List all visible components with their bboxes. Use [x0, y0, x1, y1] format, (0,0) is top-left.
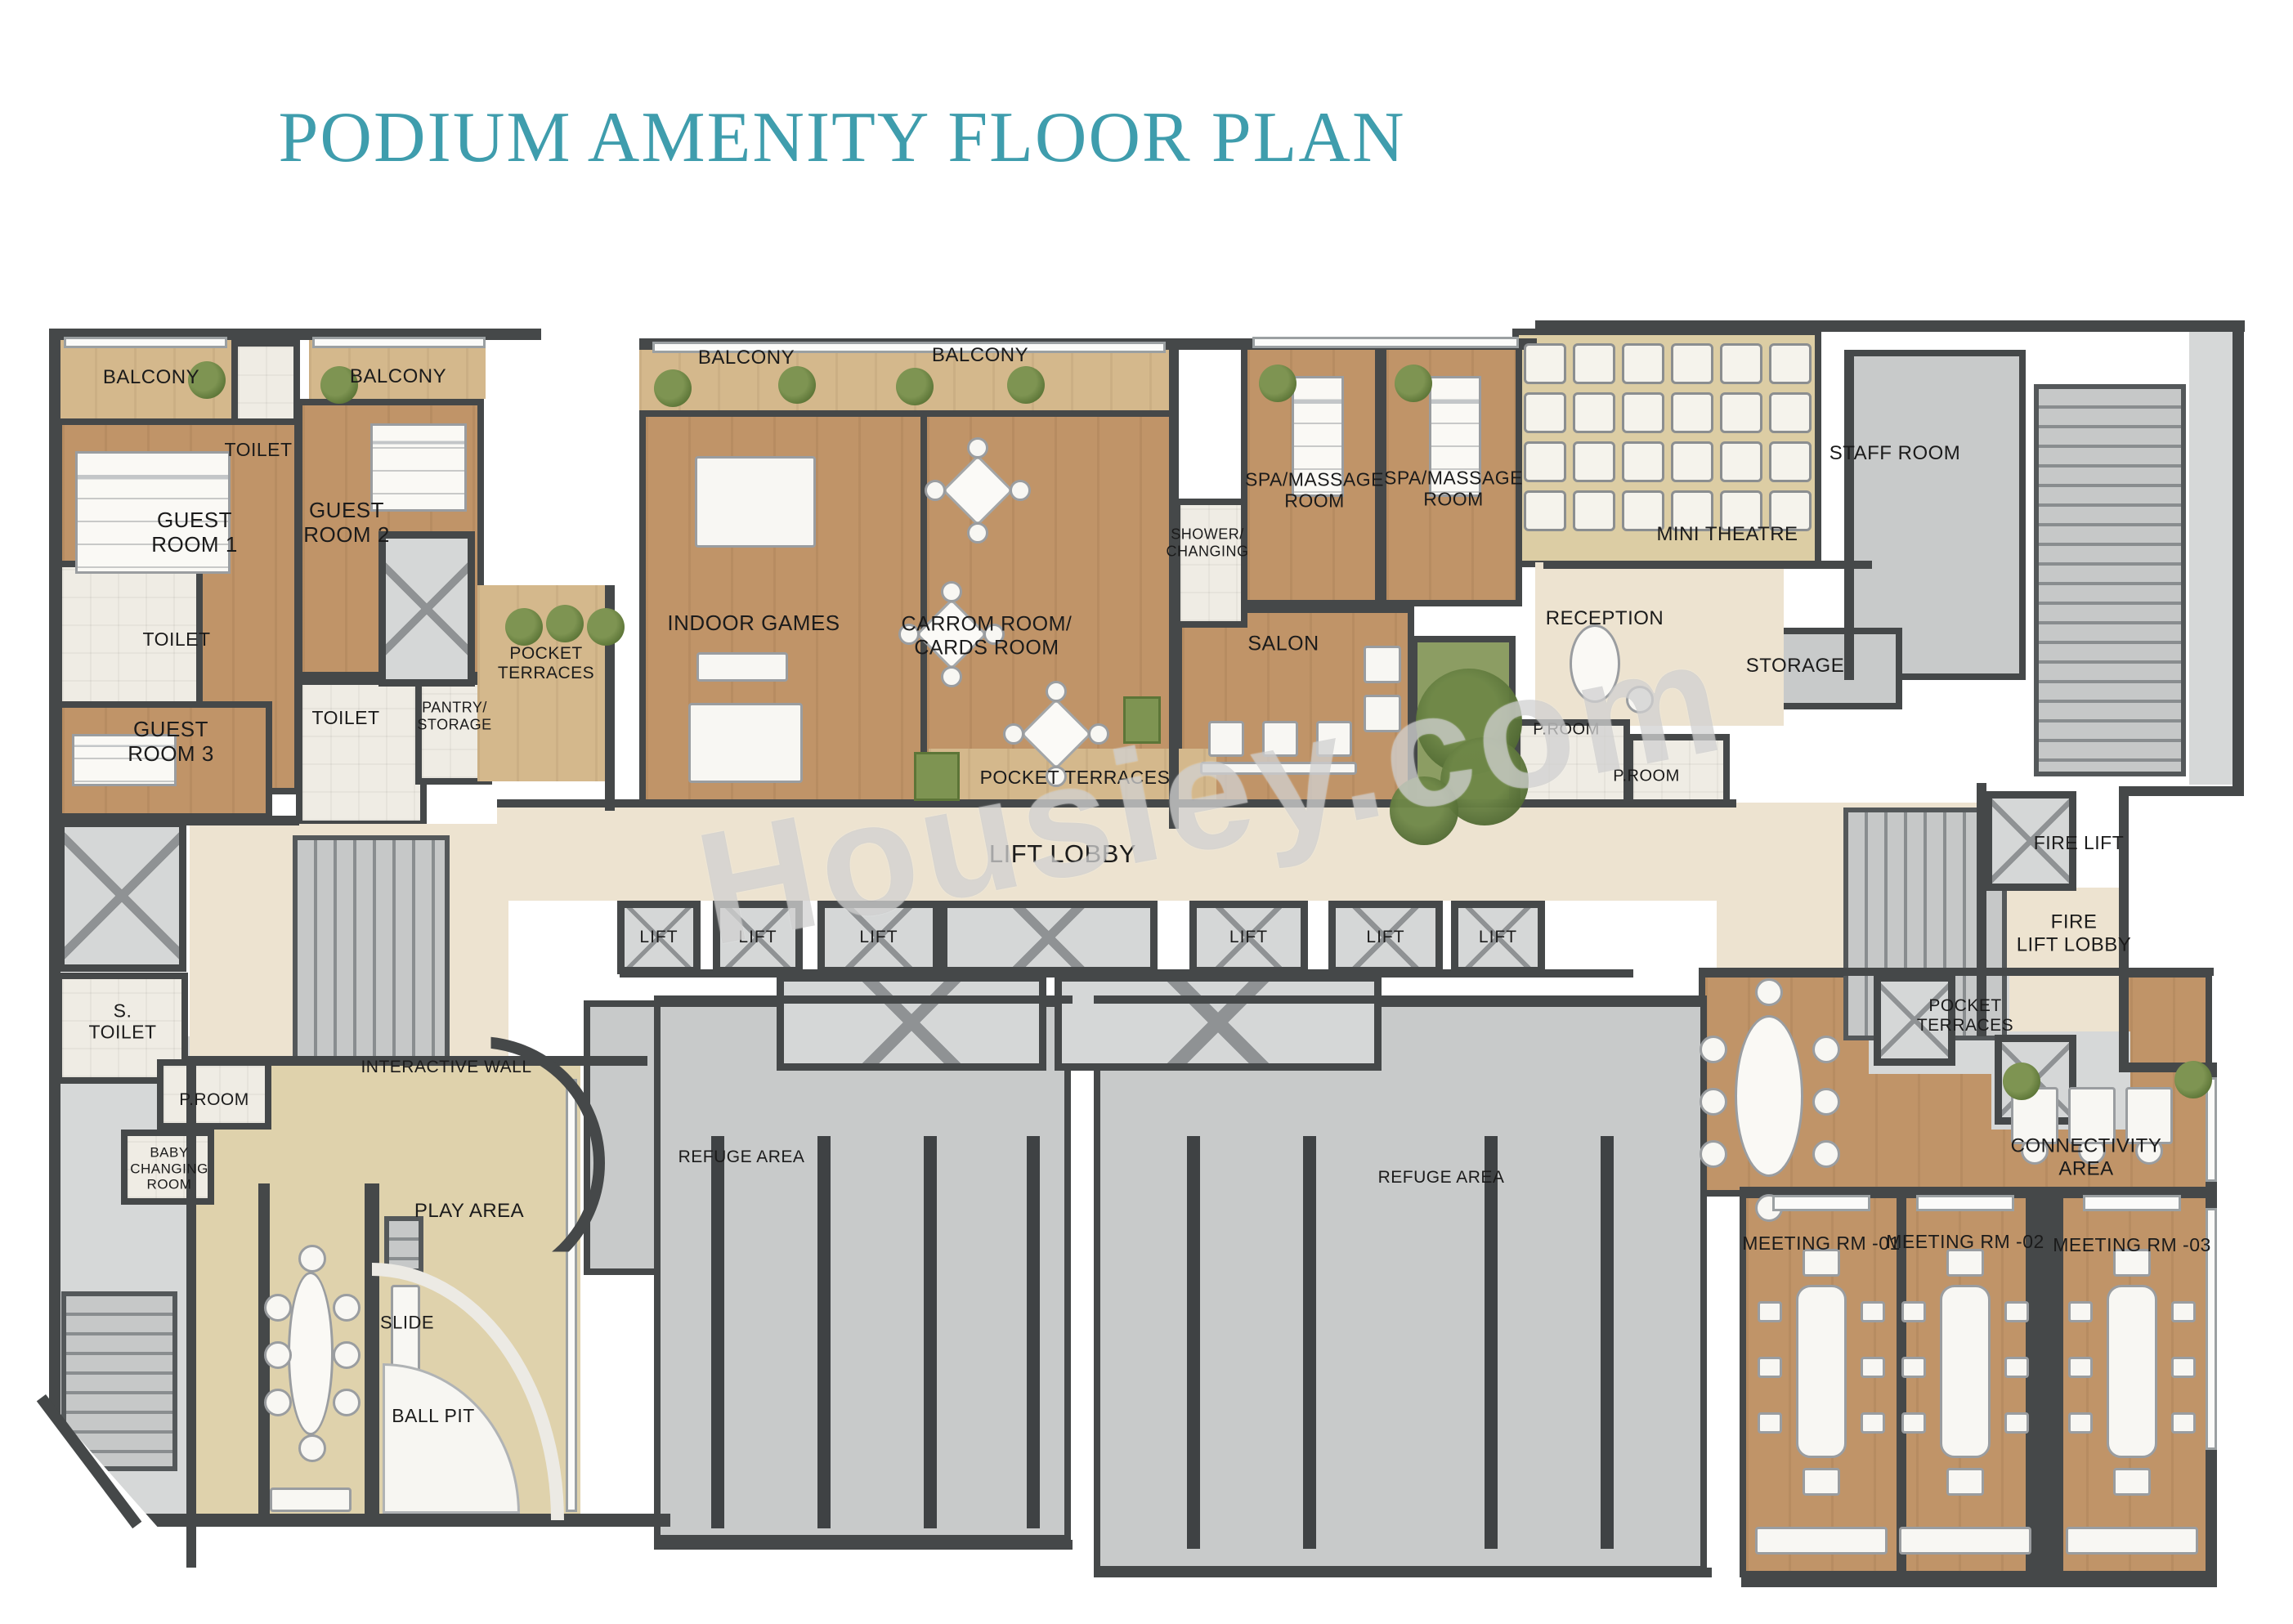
- label-pantry-storage: PANTRY/ STORAGE: [417, 699, 491, 732]
- lift-shaft: LIFT: [1451, 901, 1545, 974]
- meeting-table: [1940, 1285, 1991, 1458]
- chair: [298, 1434, 326, 1462]
- chair: [2004, 1412, 2029, 1434]
- chair: [1901, 1357, 1926, 1378]
- label-ball-pit: BALL PIT: [392, 1405, 475, 1426]
- window: [2206, 1077, 2217, 1182]
- theatre-seat: [1671, 343, 1713, 384]
- lift-shaft: LIFT: [1328, 901, 1443, 974]
- theatre-seat: [1622, 441, 1664, 482]
- column: [1601, 1136, 1614, 1549]
- chair: [333, 1389, 361, 1416]
- lift-label: LIFT: [1229, 928, 1268, 947]
- floor-plan-page: PODIUM AMENITY FLOOR PLAN LIFTLIFTLIFTLI…: [0, 0, 2293, 1624]
- label-meeting-rm-2: MEETING RM -02: [1886, 1231, 2044, 1252]
- staircase: [293, 835, 450, 1063]
- chair: [1812, 1036, 1840, 1063]
- label-balcony-3: BALCONY: [698, 347, 795, 369]
- chair: [264, 1389, 292, 1416]
- window-sill: [2083, 1195, 2181, 1211]
- plant: [1259, 365, 1297, 402]
- plant: [2174, 1061, 2212, 1098]
- column: [1027, 1136, 1040, 1528]
- theatre-seat: [1524, 392, 1566, 433]
- label-toilet-top: TOILET: [224, 439, 292, 460]
- chair: [2068, 1357, 2093, 1378]
- column: [924, 1136, 937, 1528]
- label-carrom-room: CARROM ROOM/ CARDS ROOM: [902, 612, 1073, 660]
- plant: [546, 605, 584, 642]
- plant: [2003, 1063, 2040, 1100]
- service-shaft: [57, 820, 186, 972]
- label-balcony-4: BALCONY: [932, 344, 1028, 367]
- chair: [2113, 1468, 2151, 1496]
- chair: [1812, 1140, 1840, 1168]
- label-guest-room-3: GUEST ROOM 3: [128, 718, 214, 767]
- label-staff-room: STAFF ROOM: [1829, 442, 1961, 465]
- wall: [654, 995, 1073, 1004]
- table: [270, 1488, 352, 1512]
- wall: [2119, 786, 2243, 796]
- chair: [298, 1245, 326, 1273]
- floor-shower-changing: [1174, 499, 1247, 628]
- wall: [49, 329, 60, 1440]
- chair: [1901, 1412, 1926, 1434]
- window-sill: [1916, 1195, 2014, 1211]
- lift-label: LIFT: [639, 928, 678, 947]
- label-guest-room-1: GUEST ROOM 1: [151, 508, 238, 557]
- label-meeting-rm-3: MEETING RM -03: [2053, 1234, 2211, 1255]
- wall: [2233, 320, 2244, 796]
- table: [695, 456, 816, 548]
- chair: [967, 522, 988, 544]
- label-balcony-1: BALCONY: [103, 366, 199, 389]
- chair: [1758, 1412, 1782, 1434]
- theatre-seat: [1622, 392, 1664, 433]
- label-play-area: PLAY AREA: [414, 1200, 524, 1223]
- column: [1303, 1136, 1316, 1549]
- label-storage: STORAGE: [1746, 655, 1844, 678]
- chair: [2068, 1301, 2093, 1322]
- plant: [1007, 366, 1045, 404]
- label-pocket-terraces-left: POCKET TERRACES: [498, 644, 594, 683]
- chair: [1861, 1357, 1885, 1378]
- plant: [778, 366, 816, 404]
- label-balcony-2: BALCONY: [350, 365, 446, 388]
- chair: [1803, 1468, 1840, 1496]
- table: [696, 652, 788, 682]
- theatre-seat: [1622, 343, 1664, 384]
- chair: [967, 437, 988, 459]
- theatre-seat: [1573, 441, 1615, 482]
- chair: [941, 666, 962, 687]
- label-fire-lift-lobby: FIRE LIFT LOBBY: [2017, 910, 2132, 955]
- window: [1252, 337, 1519, 348]
- chair: [941, 581, 962, 602]
- label-salon: SALON: [1247, 633, 1319, 656]
- chair: [1946, 1468, 1984, 1496]
- plant: [505, 608, 543, 646]
- theatre-seat: [1720, 441, 1762, 482]
- floor-toilet-mid: [296, 678, 427, 827]
- floor-refuge-right: [1094, 1000, 1707, 1573]
- theatre-seat: [1573, 490, 1615, 531]
- chair: [1700, 1140, 1727, 1168]
- theatre-seat: [1671, 392, 1713, 433]
- label-refuge-right: REFUGE AREA: [1378, 1168, 1505, 1188]
- wall: [1535, 320, 2245, 332]
- label-guest-room-2: GUEST ROOM 2: [303, 499, 390, 548]
- label-toilet-mid: TOILET: [311, 707, 379, 728]
- label-shower-changing: SHOWER/ CHANGING: [1166, 526, 1248, 559]
- lift-shaft: LIFT: [617, 901, 701, 974]
- label-pocket-terraces-right: POCKET TERRACES: [1917, 996, 2013, 1036]
- label-fire-lift: FIRE LIFT: [2034, 832, 2125, 853]
- wall: [654, 1540, 1073, 1550]
- chair: [1755, 978, 1783, 1006]
- label-baby-changing: BABY CHANGING ROOM: [130, 1145, 208, 1193]
- chair: [2004, 1357, 2029, 1378]
- chair: [1946, 1249, 1984, 1277]
- chair: [264, 1341, 292, 1369]
- label-meeting-rm-1: MEETING RM -01: [1742, 1233, 1901, 1254]
- chair: [1901, 1301, 1926, 1322]
- chair: [333, 1341, 361, 1369]
- chair: [264, 1294, 292, 1322]
- wall: [1543, 561, 1872, 569]
- meeting-table: [2107, 1285, 2157, 1458]
- theatre-seat: [1769, 441, 1812, 482]
- chair: [1700, 1088, 1727, 1116]
- column: [1485, 1136, 1498, 1549]
- theatre-seat: [1671, 441, 1713, 482]
- column: [711, 1136, 724, 1528]
- service-shaft: [378, 531, 475, 687]
- chair: [1812, 1088, 1840, 1116]
- column: [1187, 1136, 1200, 1549]
- credenza: [1755, 1527, 1888, 1555]
- chair: [1861, 1412, 1885, 1434]
- label-s-toilet: S. TOILET: [88, 1000, 156, 1044]
- oval-table: [1735, 1015, 1803, 1177]
- theatre-seat: [1573, 343, 1615, 384]
- oval-table: [288, 1272, 334, 1435]
- label-mini-theatre: MINI THEATRE: [1656, 523, 1798, 546]
- plant: [587, 608, 625, 646]
- label-spa-massage-1: SPA/MASSAGE ROOM: [1245, 469, 1384, 512]
- staircase: [2034, 384, 2186, 776]
- label-connectivity-area: CONNECTIVITY AREA: [1983, 1134, 2190, 1179]
- label-spa-massage-2: SPA/MASSAGE ROOM: [1384, 468, 1523, 511]
- chair: [1758, 1301, 1782, 1322]
- label-refuge-left: REFUGE AREA: [678, 1148, 805, 1167]
- column: [817, 1136, 831, 1528]
- wall: [186, 1056, 196, 1568]
- service-shaft: [1055, 974, 1382, 1071]
- chair: [2171, 1357, 2196, 1378]
- chair: [1700, 1036, 1727, 1063]
- chair: [2171, 1412, 2196, 1434]
- chair: [1758, 1357, 1782, 1378]
- wall: [1094, 1568, 1712, 1577]
- chair: [1861, 1301, 1885, 1322]
- lift-label: LIFT: [1479, 928, 1517, 947]
- wall: [54, 816, 299, 825]
- lift-label: LIFT: [1366, 928, 1404, 947]
- theatre-seat: [1720, 343, 1762, 384]
- window: [64, 337, 227, 348]
- plant: [896, 368, 934, 405]
- wall: [1094, 995, 1707, 1004]
- theatre-seat: [1769, 392, 1812, 433]
- chair: [925, 480, 946, 501]
- meeting-table: [1796, 1285, 1847, 1458]
- lift-shaft: LIFT: [1189, 901, 1308, 974]
- chair: [2068, 1412, 2093, 1434]
- wall: [1699, 968, 2214, 976]
- window: [312, 337, 486, 348]
- service-shaft: [777, 974, 1046, 1071]
- chair: [333, 1294, 361, 1322]
- chair: [2004, 1301, 2029, 1322]
- plant: [1395, 365, 1432, 402]
- theatre-seat: [1769, 343, 1812, 384]
- label-indoor-games: INDOOR GAMES: [667, 611, 840, 636]
- label-interactive-wall: INTERACTIVE WALL: [361, 1058, 531, 1077]
- label-toilet-left: TOILET: [142, 629, 210, 650]
- wall: [1741, 1576, 2217, 1587]
- chair: [1010, 480, 1031, 501]
- credenza: [1899, 1527, 2031, 1555]
- label-slide: SLIDE: [380, 1312, 434, 1332]
- theatre-seat: [1524, 490, 1566, 531]
- label-p-room-bl: P.ROOM: [179, 1090, 249, 1110]
- window-sill: [1772, 1195, 1870, 1211]
- chair: [2171, 1301, 2196, 1322]
- chair: [1046, 681, 1067, 702]
- theatre-seat: [1573, 392, 1615, 433]
- theatre-seat: [1720, 392, 1762, 433]
- wall: [1844, 350, 1854, 680]
- plant: [654, 369, 692, 407]
- table: [688, 703, 803, 783]
- theatre-seat: [1524, 343, 1566, 384]
- theatre-seat: [1524, 441, 1566, 482]
- credenza: [2066, 1527, 2198, 1555]
